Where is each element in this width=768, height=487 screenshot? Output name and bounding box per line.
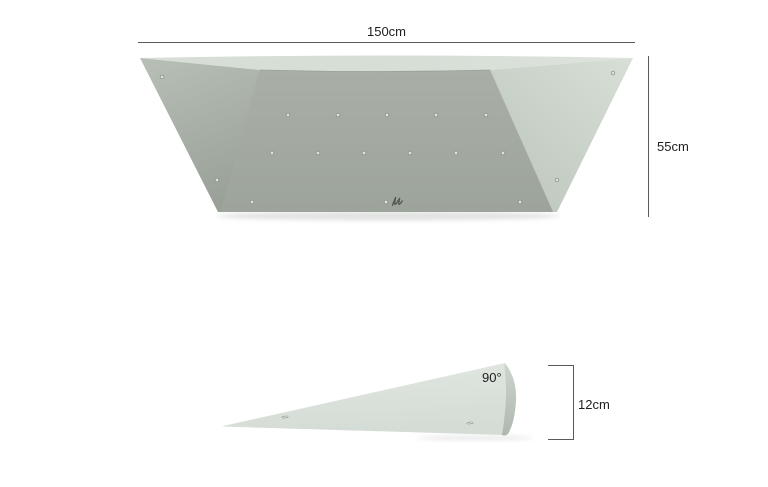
bolt-hole xyxy=(160,75,164,79)
wedge-profile-face xyxy=(223,363,506,435)
side-height-dim-bracket xyxy=(548,365,574,440)
side-view-ground-shadow xyxy=(417,436,533,441)
bolt-hole xyxy=(454,151,458,155)
front-width-label: 150cm xyxy=(138,24,635,39)
bolt-hole xyxy=(286,113,290,117)
front-height-label: 55cm xyxy=(657,139,689,154)
bolt-hole xyxy=(555,178,559,182)
bolt-hole xyxy=(215,178,219,182)
bolt-hole xyxy=(385,113,389,117)
bolt-hole xyxy=(518,200,522,204)
bolt-hole xyxy=(362,151,366,155)
front-view-ground-shadow xyxy=(216,212,560,221)
front-height-dim-line xyxy=(648,56,649,217)
bolt-hole xyxy=(270,151,274,155)
bolt-hole xyxy=(484,113,488,117)
volume-front-view xyxy=(140,56,633,221)
bolt-hole xyxy=(336,113,340,117)
bolt-hole xyxy=(316,151,320,155)
bolt-hole xyxy=(250,200,254,204)
side-angle-label: 90° xyxy=(482,370,502,385)
volume-drawing xyxy=(0,0,768,487)
front-width-dim-line xyxy=(138,42,635,43)
technical-drawing-page: 150cm 55cm 90° 12cm xyxy=(0,0,768,487)
bolt-hole xyxy=(408,151,412,155)
bolt-hole xyxy=(434,113,438,117)
bolt-hole xyxy=(501,151,505,155)
bolt-hole xyxy=(611,71,615,75)
bolt-hole xyxy=(384,200,388,204)
side-height-label: 12cm xyxy=(578,397,610,412)
